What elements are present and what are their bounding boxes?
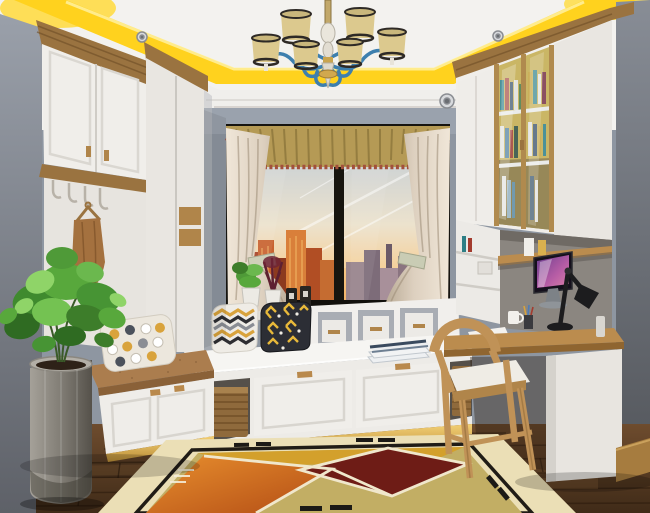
wardrobe-handle-wood bbox=[179, 229, 201, 246]
drawer-handle bbox=[150, 389, 161, 396]
door-stile-wood bbox=[549, 45, 554, 232]
cup bbox=[596, 316, 605, 337]
pencil-cup bbox=[524, 315, 533, 329]
door-handle bbox=[104, 150, 109, 161]
glass-doors bbox=[494, 45, 554, 232]
drawer-handle bbox=[297, 371, 312, 378]
platform-drawer bbox=[356, 362, 446, 428]
room-photo bbox=[0, 0, 650, 513]
platform-drawer bbox=[254, 370, 352, 436]
soil bbox=[36, 360, 86, 370]
geometric-pillow bbox=[261, 302, 311, 352]
drawer-handle bbox=[395, 363, 410, 370]
door-stile-wood bbox=[494, 64, 499, 226]
side-panel bbox=[554, 20, 612, 242]
mug bbox=[508, 311, 519, 324]
planter bbox=[30, 357, 92, 505]
door-handle bbox=[520, 140, 524, 150]
wardrobe-handle-wood bbox=[179, 207, 201, 225]
desk-base-cabinet bbox=[546, 349, 622, 482]
wardrobe bbox=[144, 42, 212, 352]
chandelier-rod bbox=[325, 0, 331, 26]
door-handle bbox=[86, 146, 91, 157]
wicker-basket bbox=[209, 387, 248, 437]
drawer-handle bbox=[174, 385, 185, 392]
